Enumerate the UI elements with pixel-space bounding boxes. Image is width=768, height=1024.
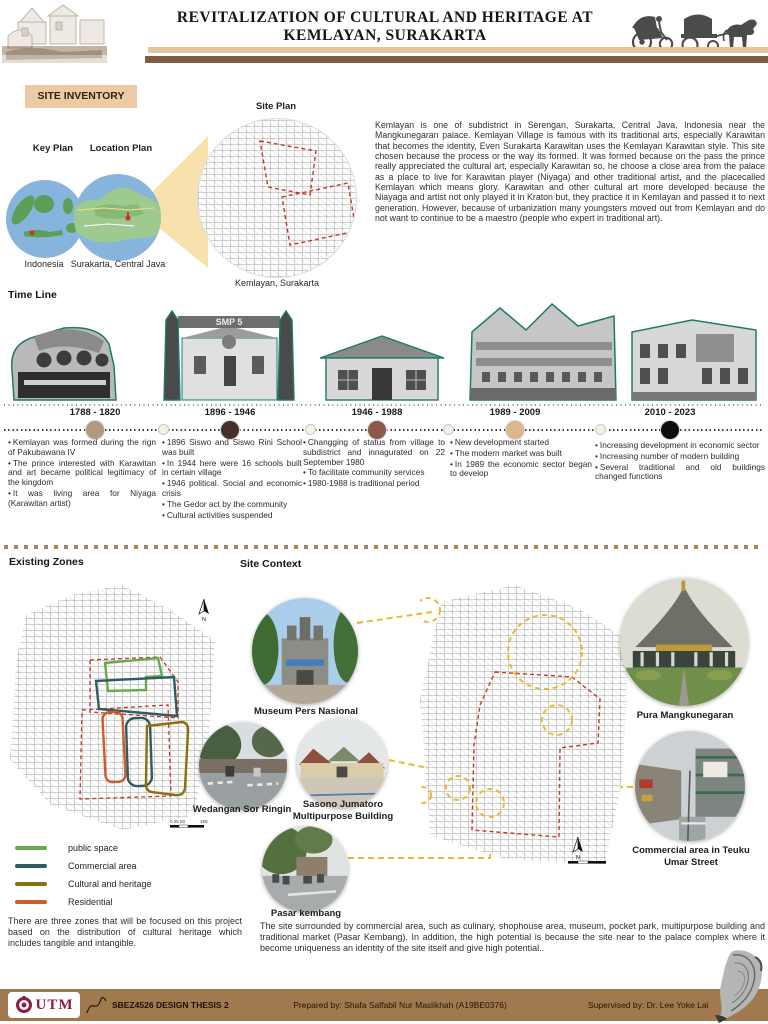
existing-zones-overlay: N 0 25 50 150 [10,585,215,835]
timeline-heading: Time Line [8,289,57,301]
svg-text:SMP 5: SMP 5 [216,317,243,327]
wedangan-sor-ringin-photo [199,722,287,810]
timeline-dot-minor-4 [595,424,606,435]
section-separator [4,545,764,549]
existing-zones-heading: Existing Zones [9,556,84,568]
poster-title-line1: REVITALIZATION OF CULTURAL AND HERITAGE … [150,9,620,27]
north-arrow-icon: N [573,837,583,861]
north-arrow-icon: N [199,599,209,623]
timeline-column-3: Changging of status from village to subd… [303,438,445,490]
bullet-item: Cultural activities suspended [162,511,302,521]
key-plan-label: Key Plan [22,143,84,154]
teuku-umar-street-caption: Commercial area in Teuku Umar Street [625,845,757,869]
timeline-dot-minor-2 [305,424,316,435]
pura-mangkunegaran-caption: Pura Mangkunegaran [618,710,752,722]
pasar-kembang-caption: Pasar kembang [250,908,362,920]
timeline-column-4: New development startedThe modern market… [450,438,592,480]
bullet-item: New development started [450,438,592,448]
pura-mangkunegaran-photo [620,578,748,706]
timeline-column-1: Kemlayan was formed during the rign of P… [8,438,156,510]
legend-item-public-space: public space [15,842,195,854]
context-marker-museum [420,598,440,622]
bullet-item: Increasing development in economic secto… [595,441,765,451]
pasar-kembang-photo [262,826,348,912]
bullet-item: Several traditional and old buildings ch… [595,463,765,483]
bullet-item: The Gedor act by the community [162,500,302,510]
timeline-date-1: 1788 - 1820 [49,407,141,418]
legend-item-residential: Residential [15,896,195,908]
museum-pers-nasional-photo [252,598,358,704]
shell-graphic [697,945,768,1024]
timeline-date-3: 1946 - 1988 [331,407,423,418]
bullet-item: 1980-1988 is traditional period [303,479,445,489]
teuku-umar-street-photo [635,731,745,841]
bullet-item: 1946 political. Social and economic cris… [162,479,302,499]
bullet-item: 1896 Siswo and Siswo Rini School was bui… [162,438,302,458]
timeline-dot-minor-1 [158,424,169,435]
market-building-photo [458,300,626,402]
bullet-item: To facilitate community services [303,468,445,478]
poster-title: REVITALIZATION OF CULTURAL AND HERITAGE … [150,9,620,44]
zones-note: There are three zones that will be focus… [8,916,242,948]
context-marker-commercial [542,705,572,735]
site-boundary-lower [80,705,171,799]
bullet-item: Changging of status from village to subd… [303,438,445,467]
site-context-note: The site surrounded by commercial area, … [260,921,765,953]
header-bar-brown [145,56,768,63]
timeline-date-5: 2010 - 2023 [624,407,716,418]
site-context-heading: Site Context [240,558,301,570]
location-plan-map [74,174,161,261]
traditional-house-photo [302,330,462,402]
context-marker-wedangan [420,787,431,803]
surakarta-caption: Surakarta, Central Java [57,259,179,269]
commercial-zone-lower [126,718,152,787]
public-space-zone [105,658,162,691]
thesis-poster: REVITALIZATION OF CULTURAL AND HERITAGE … [0,0,768,1024]
utm-logo: UTM [8,992,80,1018]
legend-label: Commercial area [68,861,137,871]
cultural-swatch [15,882,47,886]
timeline-dot-2010 [661,421,679,439]
svg-text:150: 150 [200,819,208,824]
smp5-school-gate-photo: SMP 5 [152,304,304,402]
bullet-item: In 1989 the economic sector began to dev… [450,460,592,480]
heritage-buildings-collage [2,2,107,64]
sasono-jumatoro-photo [297,718,387,808]
public-space-swatch [15,846,47,850]
location-plan-label: Location Plan [84,143,158,154]
sasono-jumatoro-caption: Sasono Jumatoro Multipurpose Building [280,799,406,823]
signature-mark [84,992,108,1018]
site-inventory-badge: SITE INVENTORY [25,85,137,108]
context-marker-sasono [446,776,470,800]
timeline-column-2: 1896 Siswo and Siswo Rini School was bui… [162,438,302,521]
site-plan-map [198,119,356,277]
context-marker-mangkunegaran [508,615,582,689]
key-plan-map [6,180,84,258]
bullet-item: Increasing number of modern building [595,452,765,462]
site-boundary [472,672,600,837]
bullet-item: The prince interested with Karawitan and… [8,459,156,488]
commercial-swatch [15,864,47,868]
timeline-top-rule [4,404,764,406]
context-marker-pasar [476,789,504,817]
bullet-item: In 1944 here were 16 schools built in ce… [162,459,302,479]
site-context-overlay: N [420,585,630,870]
header-bar-tan [148,47,768,53]
utm-logo-text: UTM [36,997,74,1014]
footer-prepared-by: Prepared by: Shafa Salfabil Nur Maslikha… [250,1000,550,1010]
intro-paragraph: Kemlayan is one of subdistrict in Sereng… [375,120,765,223]
poster-title-line2: KEMLAYAN, SURAKARTA [150,27,620,45]
bullet-item: The modern market was built [450,449,592,459]
timeline-dot-minor-3 [443,424,454,435]
residential-swatch [15,900,47,904]
timeline-column-5: Increasing development in economic secto… [595,441,765,483]
corner-building-photo [622,306,764,402]
svg-text:N: N [576,855,580,861]
timeline-date-2: 1896 - 1946 [184,407,276,418]
museum-pers-nasional-caption: Museum Pers Nasional [240,706,372,718]
site-plan-label: Site Plan [226,101,326,112]
kemlayan-caption: Kemlayan, Surakarta [217,278,337,288]
svg-text:N: N [202,617,206,623]
bullet-item: Kemlayan was formed during the rign of P… [8,438,156,458]
legend-item-commercial: Commercial area [15,860,195,872]
legend-label: public space [68,843,118,853]
legend-label: Cultural and heritage [68,879,152,889]
legend-item-cultural: Cultural and heritage [15,878,195,890]
residential-zone [102,712,126,783]
utm-emblem-icon [15,996,33,1014]
footer-supervised-by: Supervised by: Dr. Lee Yoke Lai [588,1000,709,1010]
gamelan-orchestra-photo [4,318,154,402]
scale-bar [568,861,606,864]
bullet-item: It was living area for Niyaga (Karawitan… [8,489,156,509]
legend-label: Residential [68,897,113,907]
timeline-date-4: 1989 - 2009 [469,407,561,418]
scale-bar: 0 25 50 150 [170,819,208,828]
svg-text:0 25 50: 0 25 50 [170,819,186,824]
footer-course: SBEZ4526 DESIGN THESIS 2 [112,1000,229,1010]
